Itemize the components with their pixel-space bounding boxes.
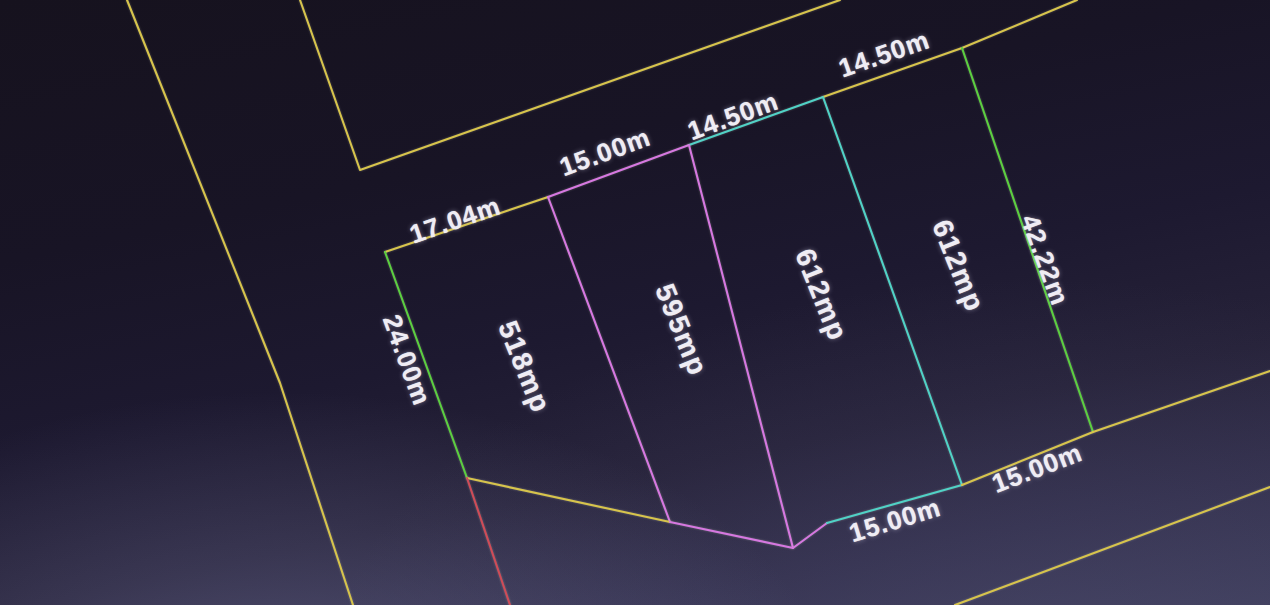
red-boundary-line bbox=[467, 478, 510, 605]
parcel-bottom-edge-595 bbox=[670, 522, 827, 548]
parcel-plan-drawing bbox=[0, 0, 1270, 605]
divider-518-595 bbox=[548, 197, 670, 522]
divider-612-612 bbox=[823, 97, 962, 485]
road-south-outer-line bbox=[955, 487, 1270, 605]
cad-viewport: 17.04m15.00m14.50m14.50m24.00m42.22m518m… bbox=[0, 0, 1270, 605]
road-west-outer-line bbox=[127, 0, 353, 605]
road-west-inner-line bbox=[300, 0, 840, 170]
parcel-bottom-edge-518 bbox=[467, 478, 670, 522]
